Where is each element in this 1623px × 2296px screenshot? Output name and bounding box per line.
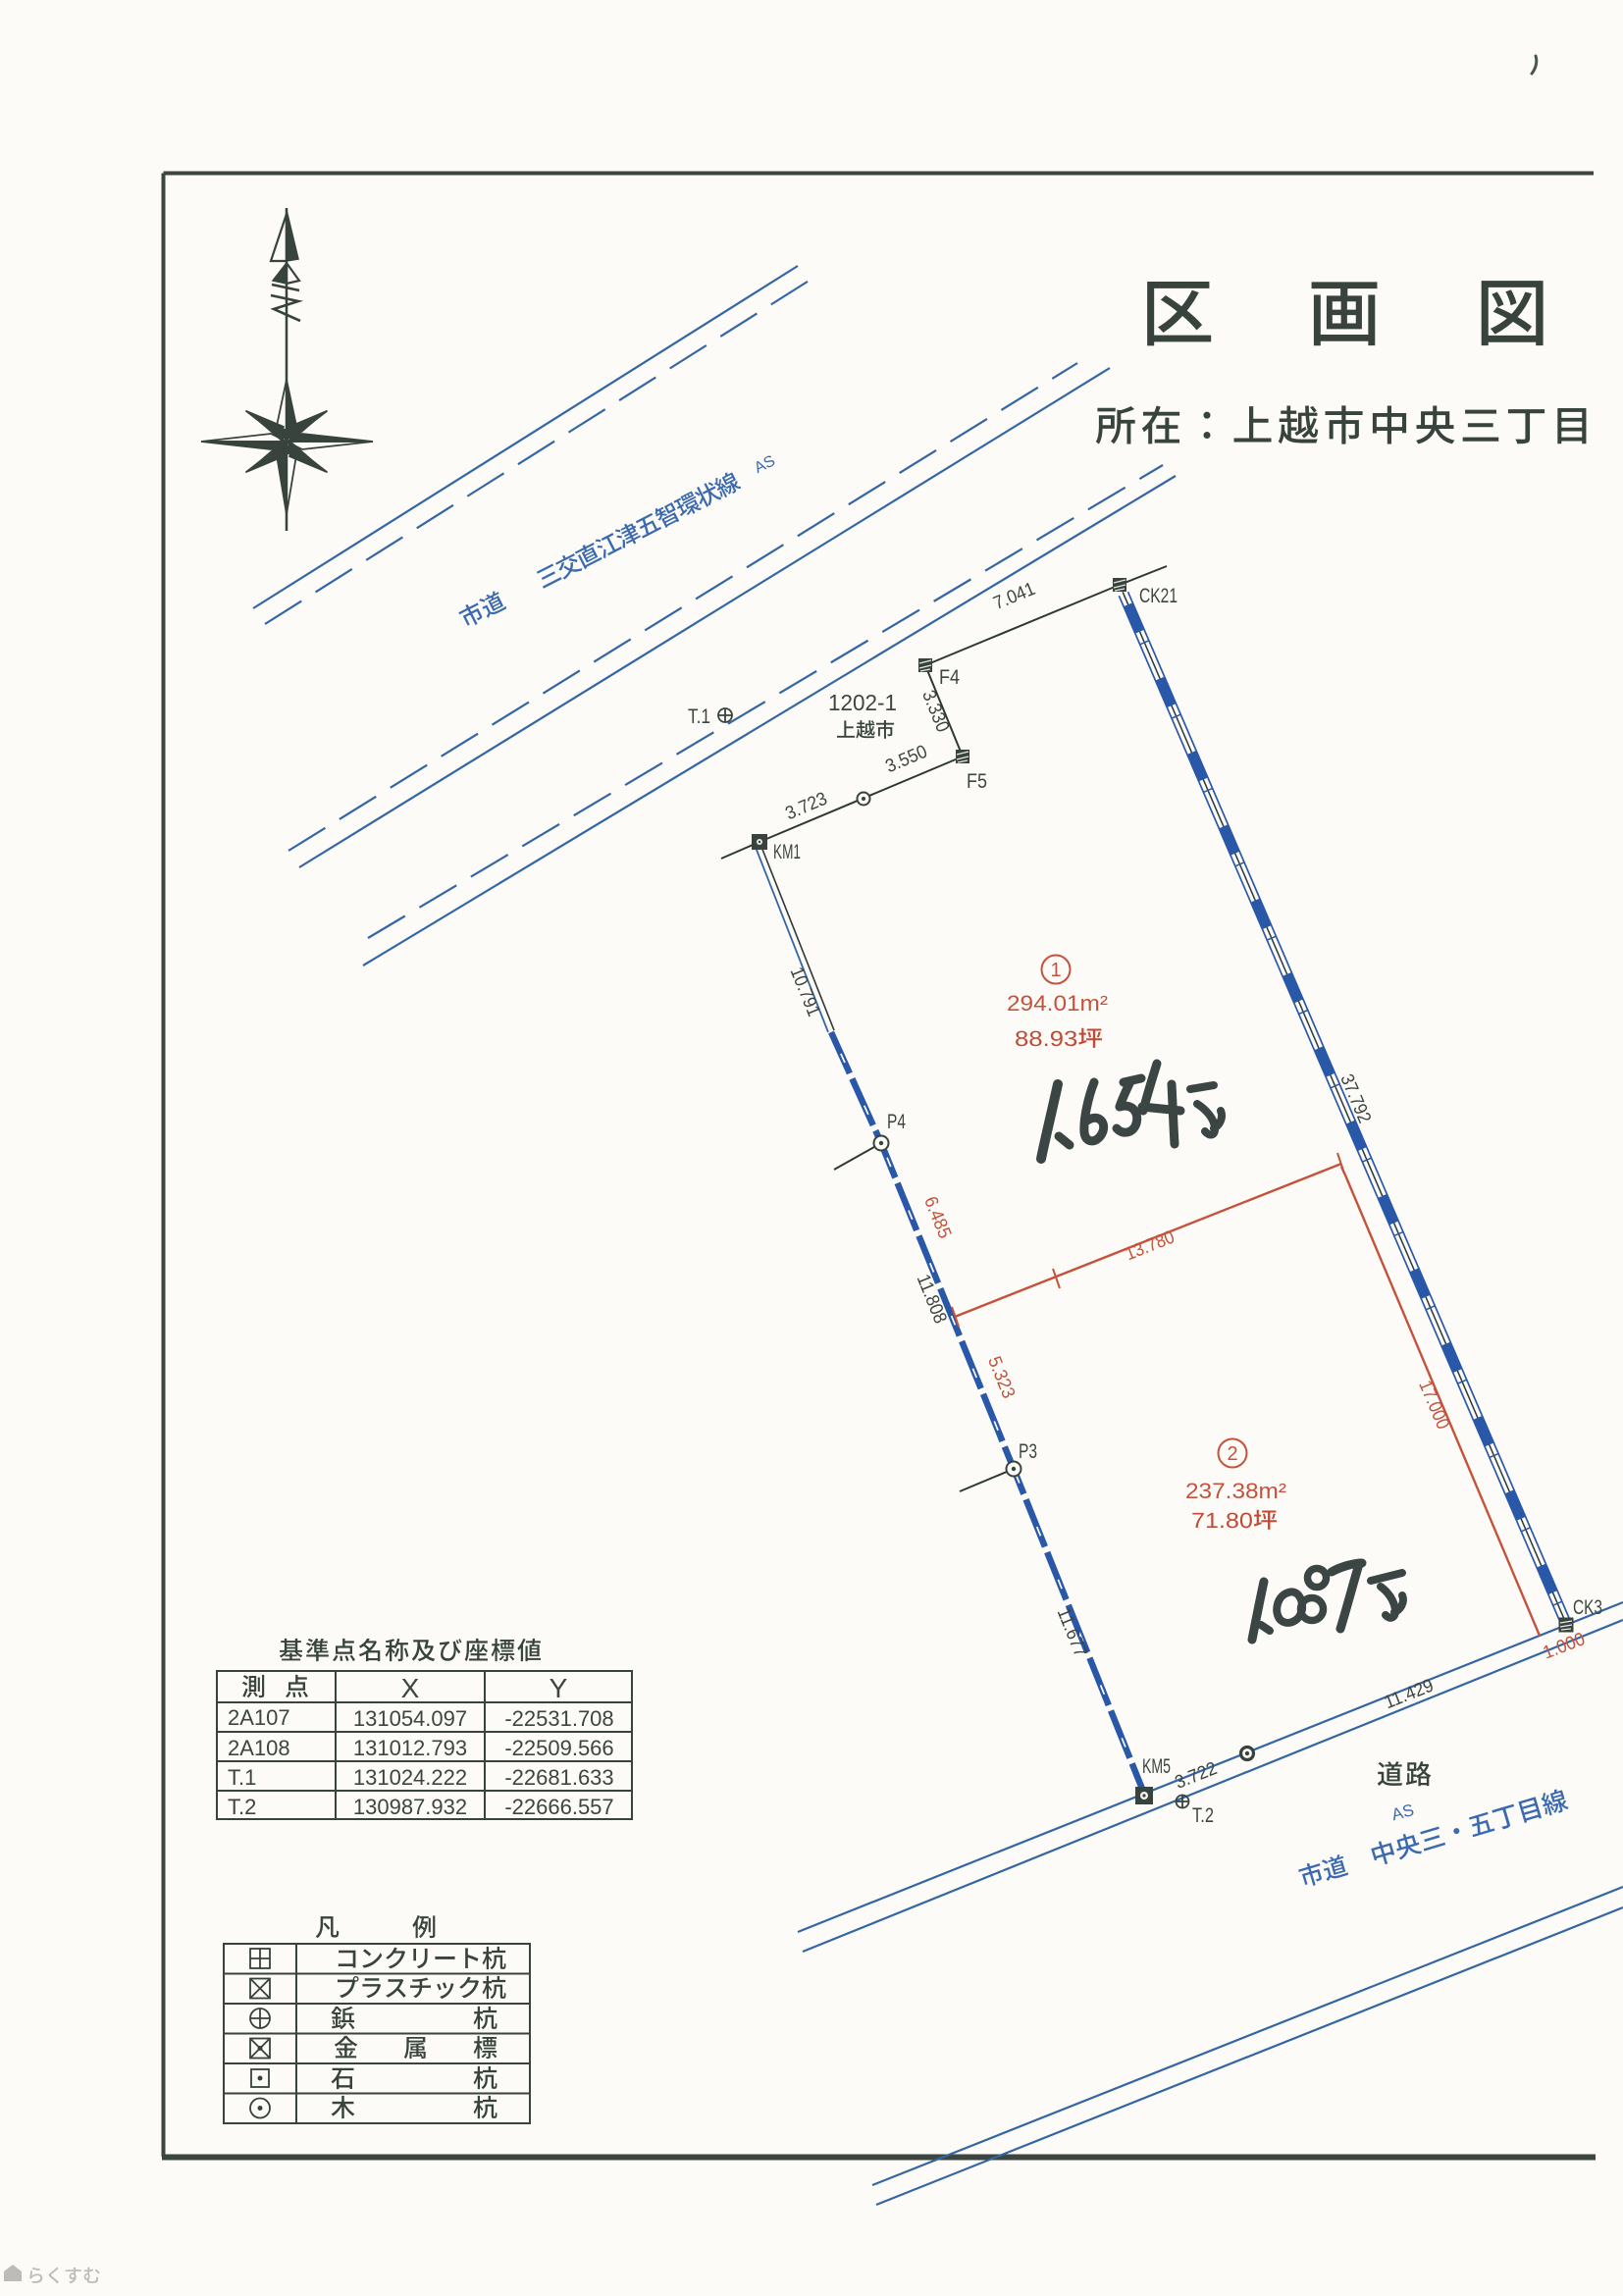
svg-text:-22531.708: -22531.708 — [504, 1706, 613, 1731]
svg-text:131054.097: 131054.097 — [353, 1706, 467, 1731]
svg-text:2A107: 2A107 — [228, 1705, 290, 1730]
svg-text:3.723: 3.723 — [782, 789, 830, 825]
svg-text:3.722: 3.722 — [1173, 1758, 1221, 1794]
svg-text:2A108: 2A108 — [228, 1736, 290, 1760]
svg-text:37.792: 37.792 — [1335, 1071, 1375, 1126]
svg-text:2: 2 — [1227, 1443, 1237, 1465]
svg-text:P3: P3 — [1019, 1440, 1037, 1463]
svg-text:KM1: KM1 — [773, 841, 801, 863]
svg-text:3.550: 3.550 — [882, 742, 930, 778]
svg-text:130987.932: 130987.932 — [353, 1795, 467, 1819]
svg-text:131012.793: 131012.793 — [353, 1736, 467, 1760]
svg-text:294.01m²: 294.01m² — [1007, 991, 1108, 1016]
svg-text:11.677: 11.677 — [1053, 1605, 1091, 1660]
svg-text:237.38m²: 237.38m² — [1185, 1479, 1286, 1503]
svg-text:131024.222: 131024.222 — [353, 1765, 467, 1790]
svg-text:1: 1 — [1050, 960, 1061, 981]
svg-text:AS: AS — [1389, 1800, 1416, 1824]
svg-text:AS: AS — [752, 452, 778, 477]
svg-text:F4: F4 — [939, 666, 960, 689]
svg-text:5.323: 5.323 — [983, 1354, 1019, 1402]
svg-text:P4: P4 — [887, 1111, 906, 1133]
svg-text:CK3: CK3 — [1573, 1596, 1602, 1619]
svg-text:3.330: 3.330 — [917, 688, 953, 736]
svg-text:1202-1: 1202-1 — [828, 690, 897, 715]
svg-text:F5: F5 — [967, 770, 987, 793]
svg-text:1.000: 1.000 — [1541, 1629, 1589, 1663]
svg-text:T.1: T.1 — [228, 1765, 256, 1790]
svg-text:-22666.557: -22666.557 — [504, 1795, 613, 1819]
svg-text:X: X — [401, 1673, 420, 1703]
svg-text:6.485: 6.485 — [919, 1194, 955, 1242]
svg-text:KM5: KM5 — [1142, 1755, 1171, 1778]
svg-text:-22681.633: -22681.633 — [504, 1765, 613, 1790]
svg-text:11.429: 11.429 — [1382, 1676, 1437, 1714]
svg-text:T.2: T.2 — [228, 1795, 256, 1819]
svg-text:T.1: T.1 — [688, 705, 710, 728]
svg-text:-22509.566: -22509.566 — [504, 1736, 613, 1760]
svg-text:17.000: 17.000 — [1414, 1378, 1453, 1433]
svg-text:T.2: T.2 — [1192, 1804, 1214, 1827]
svg-text:Y: Y — [550, 1673, 568, 1703]
svg-text:13.780: 13.780 — [1123, 1227, 1178, 1266]
svg-text:CK21: CK21 — [1139, 585, 1178, 607]
